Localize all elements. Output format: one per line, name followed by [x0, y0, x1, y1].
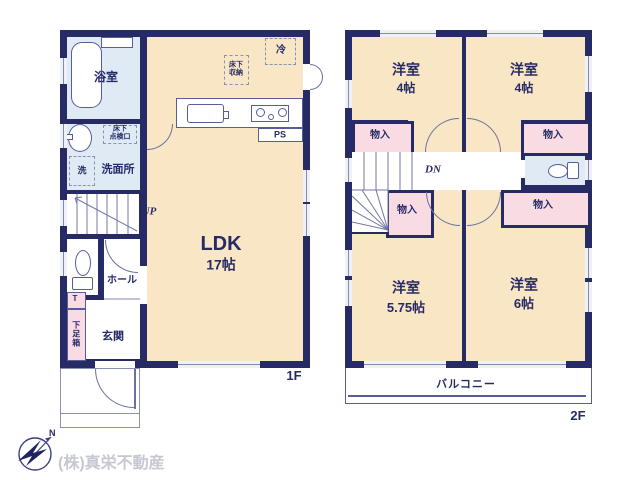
burner-icon [268, 114, 274, 120]
toilet-tank-2f [567, 162, 579, 179]
bedroom3 [352, 234, 462, 361]
window [60, 200, 67, 226]
kitchen-faucet [223, 111, 229, 119]
door-opening [303, 64, 310, 90]
underfloor-access-label: 床下 点検口 [110, 126, 131, 143]
closet2-label: 物入 [543, 130, 563, 142]
window [303, 204, 310, 236]
window [585, 56, 592, 92]
door-opening [140, 266, 147, 304]
company-name: (株)真栄不動産 [58, 449, 165, 473]
balcony-label: バルコニー [436, 378, 496, 391]
toilet-tank-1f [72, 277, 93, 290]
compass-north-label: N [49, 428, 56, 438]
bedroom1-size-label: 4帖 [397, 81, 416, 95]
floor2-label: 2F [570, 408, 585, 424]
window [478, 361, 566, 368]
fridge-label: 冷 [276, 45, 286, 57]
window [585, 160, 592, 180]
bedroom1-name-label: 洋室 [392, 62, 420, 79]
toilet-bowl-1f [75, 250, 91, 276]
floor-plan-canvas: 浴室 床下 点検口 洗面所 洗 UP ホール T 下足箱 玄関 LDK 17帖 … [0, 0, 640, 480]
window [345, 158, 352, 182]
window [303, 170, 310, 202]
window [364, 361, 446, 368]
stairs-1f [67, 194, 139, 234]
balcony-rail-line [348, 395, 586, 397]
bath-counter [101, 37, 133, 48]
entrance-door-leaf [134, 369, 136, 409]
kitchen-sink [187, 104, 224, 123]
window [585, 282, 592, 312]
up-label: UP [142, 205, 157, 218]
closet3-label: 物入 [397, 205, 417, 217]
bedroom4-name-label: 洋室 [510, 277, 538, 294]
window [60, 252, 67, 276]
entrance-label: 玄関 [102, 330, 124, 343]
bedroom2 [466, 37, 585, 120]
hall-label: ホール [107, 275, 137, 287]
toilet-bowl-2f [548, 164, 568, 178]
bedroom3-name-label: 洋室 [392, 280, 420, 297]
closet1-label: 物入 [370, 130, 390, 142]
washer-label: 洗 [77, 166, 86, 177]
window [60, 124, 67, 148]
shoe-box-label: 下足箱 [71, 321, 81, 348]
porch-step-line [61, 413, 139, 414]
floor1-label: 1F [286, 368, 301, 384]
ps-label: PS [274, 130, 286, 141]
ldk-name-label: LDK [200, 232, 241, 256]
window [585, 248, 592, 278]
washroom-label: 洗面所 [102, 163, 135, 176]
bedroom2-name-label: 洋室 [510, 62, 538, 79]
closet4-label: 物入 [533, 200, 553, 212]
door-arc [310, 64, 323, 90]
ldk-size-label: 17帖 [206, 257, 236, 274]
bedroom3-size-label: 5.75帖 [387, 300, 425, 316]
window [60, 58, 67, 84]
door-opening [521, 160, 525, 178]
burner-icon [256, 108, 265, 117]
ldk-room [147, 37, 303, 361]
shoe-t-label: T [73, 294, 78, 304]
underfloor-storage-label: 床下 収納 [229, 62, 243, 79]
door-opening [95, 361, 135, 368]
bedroom1 [352, 37, 462, 120]
bedroom4-size-label: 6帖 [514, 296, 534, 312]
compass-icon: N [13, 427, 59, 475]
window [380, 30, 436, 37]
bathroom-label: 浴室 [94, 70, 118, 84]
window [345, 280, 352, 306]
window [345, 250, 352, 276]
burner-icon [278, 108, 287, 117]
stairs-2f [352, 152, 424, 232]
dn-label: DN [425, 163, 441, 176]
window [345, 80, 352, 108]
entrance-step-line [104, 298, 140, 300]
window [178, 361, 260, 368]
window [487, 30, 543, 37]
bedroom2-size-label: 4帖 [515, 81, 534, 95]
